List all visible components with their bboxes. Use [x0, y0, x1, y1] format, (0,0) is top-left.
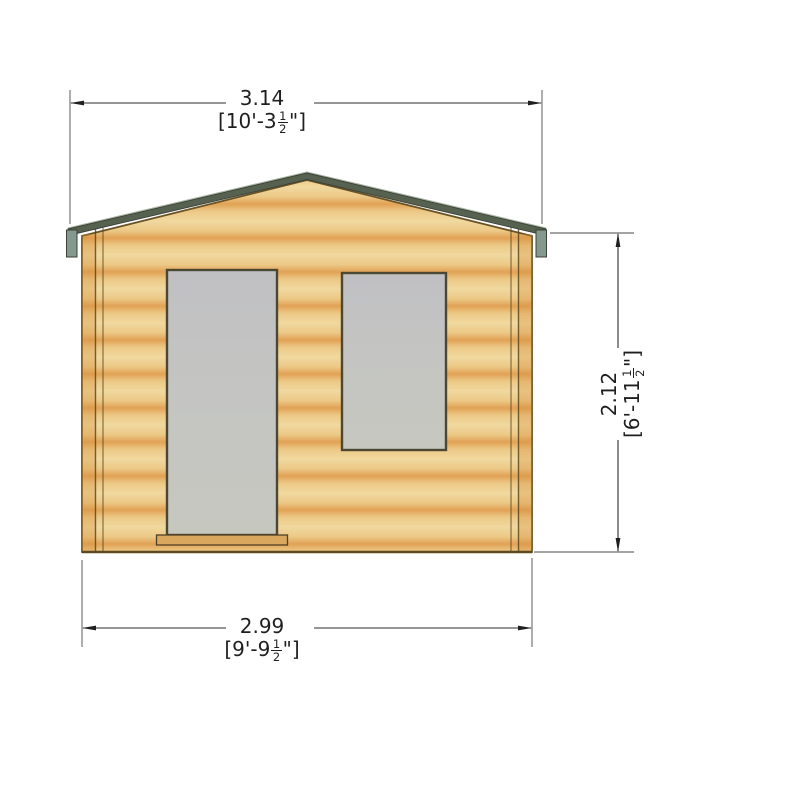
product-dimension-image: 3.14 [10'-312"] 2.99 [9'-912"] 2.12 [6'-… — [0, 0, 800, 800]
door — [157, 270, 288, 545]
dimension-label-base-width: 2.99 [9'-912"] — [162, 615, 362, 663]
left-corner-board — [82, 234, 95, 552]
dimension-metric-value: 2.12 — [598, 294, 620, 494]
dimension-metric-value: 2.99 — [162, 615, 362, 637]
cabin-facade — [82, 180, 532, 552]
window-glass — [342, 273, 446, 450]
cabin — [67, 173, 547, 553]
dimension-label-wall-height: 2.12 [6'-1112"] — [598, 294, 644, 494]
door-glass — [167, 270, 277, 535]
dimension-imperial-value: [10'-312"] — [162, 109, 362, 135]
roof-end-cap-left — [67, 230, 78, 257]
dimension-imperial-value: [6'-1112"] — [620, 294, 646, 494]
fraction: 12 — [278, 110, 288, 135]
dimension-metric-value: 3.14 — [162, 87, 362, 109]
fraction: 12 — [271, 638, 281, 663]
arrowhead-left — [70, 101, 84, 106]
dimension-label-overall-width: 3.14 [10'-312"] — [162, 87, 362, 135]
roof-end-cap-right — [536, 230, 547, 257]
arrowhead-top — [616, 233, 621, 247]
arrowhead-right — [528, 101, 542, 106]
right-corner-board — [519, 234, 532, 552]
door-sill — [157, 535, 288, 545]
arrowhead-right — [518, 626, 532, 631]
elevation-drawing — [0, 0, 800, 800]
arrowhead-bottom — [616, 538, 621, 552]
dimension-imperial-value: [9'-912"] — [162, 637, 362, 663]
arrowhead-left — [82, 626, 96, 631]
fraction: 12 — [621, 368, 646, 378]
